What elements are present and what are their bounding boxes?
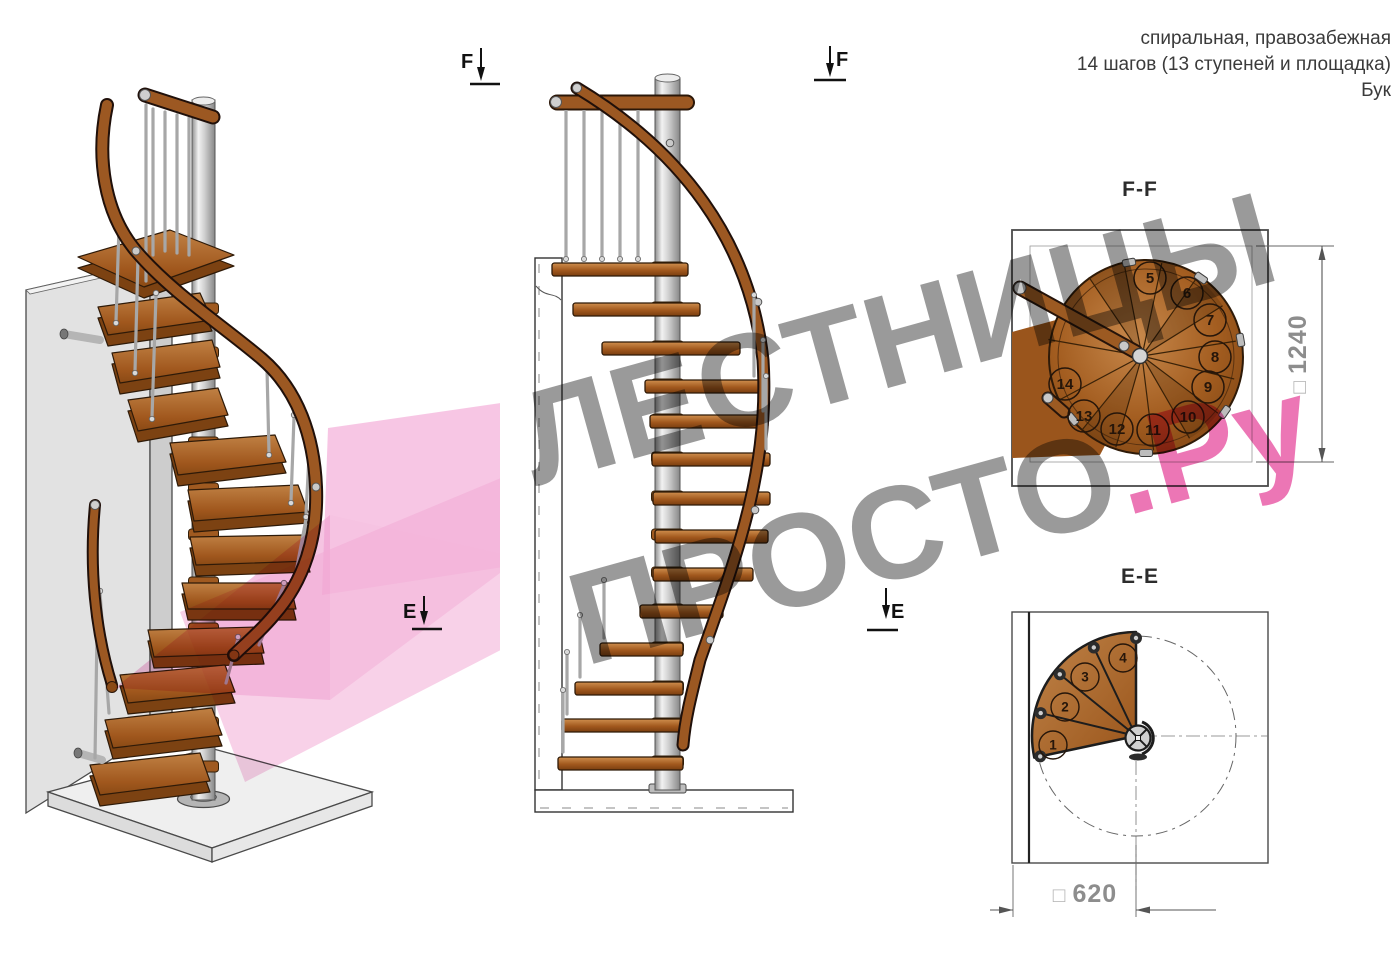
ff-title: F-F — [1122, 178, 1158, 201]
stair-material-line: Бук — [1077, 78, 1391, 104]
section-marker-f-left: F — [461, 48, 500, 84]
stair-steps-line: 14 шагов (13 ступеней и площадка) — [1077, 52, 1391, 78]
marker-letter-f: F — [461, 51, 473, 73]
step-number: 8 — [1211, 349, 1219, 366]
step-number: 13 — [1076, 408, 1093, 425]
step-number: 14 — [1057, 376, 1074, 393]
step-number: 2 — [1061, 700, 1069, 715]
stair-type-line: спиральная, правозабежная — [1077, 26, 1391, 52]
step-number: 9 — [1204, 379, 1212, 396]
plan-view-ee: E-E 1 — [990, 545, 1400, 961]
step-number: 5 — [1146, 270, 1154, 287]
step-number: 4 — [1119, 651, 1127, 666]
step-number: 10 — [1180, 409, 1197, 426]
title-block: спиральная, правозабежная 14 шагов (13 с… — [1077, 26, 1391, 104]
plan-view-ff: F-F — [990, 160, 1400, 520]
step-number: 1 — [1049, 738, 1057, 753]
elevation-view — [520, 40, 940, 830]
ee-dimension-label: □620 — [1053, 880, 1117, 908]
step-number: 12 — [1109, 421, 1126, 438]
step-number: 11 — [1145, 422, 1161, 439]
drawing-sheet: спиральная, правозабежная 14 шагов (13 с… — [0, 0, 1400, 961]
isometric-view — [20, 85, 500, 875]
pole-hub — [1133, 349, 1148, 364]
step-number: 6 — [1183, 285, 1191, 302]
step-number: 7 — [1206, 312, 1214, 329]
ee-title: E-E — [1121, 565, 1159, 588]
ff-dimension-label: □1240 — [1284, 314, 1312, 393]
step-number: 3 — [1081, 670, 1089, 685]
